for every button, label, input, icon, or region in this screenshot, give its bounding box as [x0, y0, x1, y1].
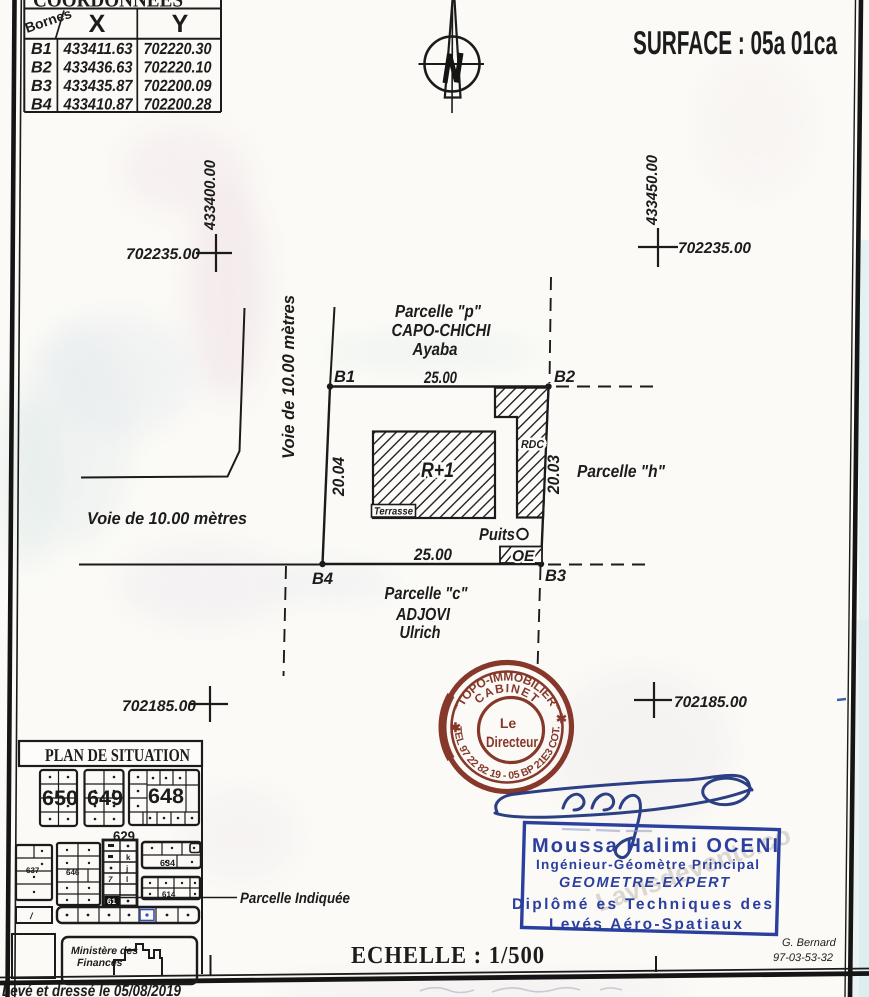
svg-text:433436.63: 433436.63	[63, 59, 133, 77]
svg-text:97-03-53-32: 97-03-53-32	[773, 952, 833, 964]
svg-text:702235.00: 702235.00	[678, 240, 751, 257]
svg-text:Finances: Finances	[77, 957, 123, 969]
svg-text:PLAN DE SITUATION: PLAN DE SITUATION	[45, 745, 190, 765]
svg-text:✱: ✱	[450, 720, 461, 735]
svg-text:702185.00: 702185.00	[122, 698, 196, 715]
svg-text:433450.00: 433450.00	[644, 155, 661, 226]
svg-text:702200.09: 702200.09	[144, 77, 212, 95]
svg-text:Voie de 10.00 mètres: Voie de 10.00 mètres	[279, 295, 298, 459]
svg-text:B1: B1	[334, 368, 355, 386]
svg-text:433410.87: 433410.87	[63, 96, 134, 114]
svg-text:702200.28: 702200.28	[144, 96, 212, 114]
svg-text:B3: B3	[545, 567, 566, 585]
svg-text:702235.00: 702235.00	[126, 246, 200, 263]
svg-text:Voie de 10.00 mètres: Voie de 10.00 mètres	[87, 509, 247, 528]
svg-text:Puits: Puits	[479, 525, 515, 544]
svg-text:SURFACE : 05a 01ca: SURFACE : 05a 01ca	[633, 24, 837, 61]
svg-text:Terrasse: Terrasse	[374, 506, 413, 518]
svg-text:Ulrich: Ulrich	[400, 622, 441, 642]
svg-text:OE: OE	[512, 548, 535, 565]
svg-text:CAPO-CHICHI: CAPO-CHICHI	[392, 320, 492, 340]
svg-text:B2: B2	[554, 368, 575, 386]
svg-text:B4: B4	[312, 570, 333, 588]
svg-text:20.03: 20.03	[545, 455, 563, 495]
svg-text:GEOMETRE-EXPERT: GEOMETRE-EXPERT	[559, 875, 730, 891]
svg-text:l: l	[126, 875, 128, 884]
svg-text:649: 649	[87, 787, 123, 810]
svg-text:Ingénieur-Géomètre Principal: Ingénieur-Géomètre Principal	[536, 857, 759, 872]
svg-text:7: 7	[108, 875, 113, 884]
svg-text:B2: B2	[31, 59, 52, 77]
svg-text:433411.63: 433411.63	[63, 40, 133, 58]
svg-text:RDC: RDC	[521, 439, 545, 451]
svg-text:25.00: 25.00	[423, 369, 457, 387]
svg-text:20.04: 20.04	[330, 457, 348, 497]
svg-text:B1: B1	[31, 40, 52, 58]
svg-text:433435.87: 433435.87	[63, 77, 134, 95]
svg-text:702220.10: 702220.10	[144, 59, 212, 77]
svg-text:✱: ✱	[556, 711, 567, 726]
svg-text:646: 646	[66, 868, 80, 877]
svg-text:Ayaba: Ayaba	[412, 339, 458, 359]
svg-text:Y: Y	[172, 10, 189, 38]
svg-text:Parcelle "p": Parcelle "p"	[395, 301, 482, 321]
svg-text:Le: Le	[500, 715, 517, 731]
svg-text:Levé et dressé le 05/08/2019: Levé et dressé le 05/08/2019	[2, 983, 181, 997]
svg-text:R+1: R+1	[421, 459, 454, 482]
svg-text:702185.00: 702185.00	[674, 694, 747, 711]
svg-text:G. Bernard: G. Bernard	[782, 937, 837, 949]
svg-text:634: 634	[160, 858, 175, 868]
svg-text:25.00: 25.00	[413, 546, 453, 564]
svg-text:637: 637	[26, 866, 40, 875]
svg-text:650: 650	[42, 787, 78, 810]
svg-text:ADJOVI: ADJOVI	[395, 604, 451, 624]
svg-text:Levés Aéro-Spatiaux: Levés Aéro-Spatiaux	[549, 916, 742, 933]
svg-text:Parcelle Indiquée: Parcelle Indiquée	[240, 890, 350, 907]
svg-text:61: 61	[107, 897, 116, 906]
svg-text:648: 648	[148, 785, 184, 808]
svg-text:B4: B4	[31, 96, 52, 114]
svg-text:629: 629	[113, 828, 135, 844]
svg-text:X: X	[89, 10, 106, 38]
svg-text:Parcelle "h": Parcelle "h"	[577, 461, 666, 481]
svg-text:B3: B3	[31, 77, 52, 95]
svg-text:433400.00: 433400.00	[202, 160, 219, 231]
svg-text:k: k	[126, 853, 131, 862]
svg-text:j: j	[125, 864, 128, 873]
svg-text:ECHELLE : 1/500: ECHELLE : 1/500	[351, 942, 545, 969]
svg-text:Directeur: Directeur	[486, 734, 538, 751]
svg-text:702220.30: 702220.30	[144, 40, 212, 58]
svg-text:Parcelle "c": Parcelle "c"	[385, 583, 469, 603]
svg-text:Diplômé es Techniques des: Diplômé es Techniques des	[512, 896, 772, 913]
